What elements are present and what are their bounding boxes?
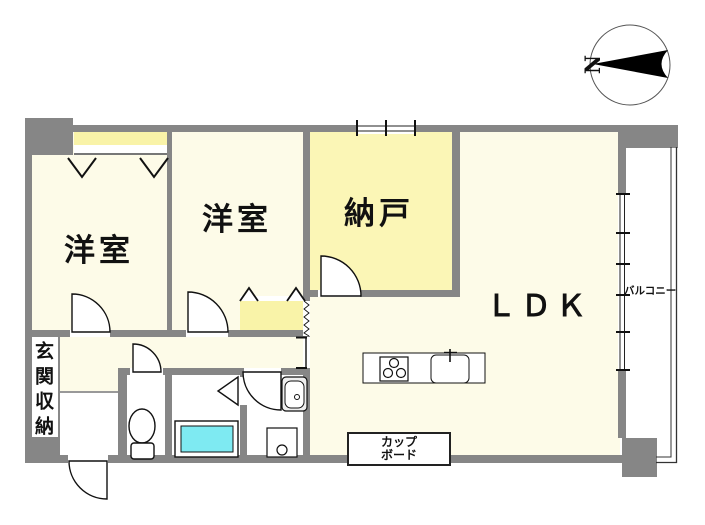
bedroom1-closet-track bbox=[74, 145, 168, 155]
pillar-bottomright bbox=[622, 438, 657, 477]
bedroom2-label: 洋室 bbox=[202, 194, 272, 239]
wall-washroom-ldk bbox=[303, 368, 310, 455]
floor-plan: 洋室 洋室 納戸 ＬＤＫ バルコニー 玄関収納 N カップ ボード bbox=[0, 0, 705, 525]
wall-top bbox=[25, 125, 678, 132]
wall-storage-right bbox=[452, 126, 460, 297]
sill-storage-door bbox=[318, 290, 360, 297]
toilet-room-area bbox=[127, 375, 165, 455]
wall-bottom bbox=[25, 455, 628, 463]
sill-bedroom1-door bbox=[70, 330, 110, 337]
washroom-area bbox=[247, 375, 303, 455]
balcony-label: バルコニー bbox=[624, 283, 676, 298]
sill-washroom-door bbox=[244, 368, 281, 375]
hallway-area bbox=[58, 337, 303, 368]
ldk-label: ＬＤＫ bbox=[486, 281, 591, 325]
cupboard-label-line2: ボード bbox=[381, 449, 417, 462]
balcony-area bbox=[628, 148, 671, 457]
sill-entrance-door bbox=[68, 455, 108, 463]
sill-toilet-door bbox=[130, 368, 163, 375]
wall-toilet-right bbox=[165, 368, 172, 455]
sill-bedroom2-door bbox=[186, 330, 228, 337]
wall-ldk-right-lower bbox=[618, 370, 626, 438]
pillar-topleft bbox=[25, 118, 73, 155]
bathroom-area bbox=[172, 375, 240, 455]
storage-room-label: 納戸 bbox=[344, 188, 414, 233]
entrance-area bbox=[58, 391, 118, 457]
wall-toilet-left bbox=[118, 368, 127, 455]
sill-bath-fold-door bbox=[240, 377, 247, 405]
cupboard-box: カップ ボード bbox=[347, 432, 451, 466]
wall-left bbox=[25, 118, 32, 463]
entrance-door bbox=[69, 461, 107, 499]
compass-north-label: N bbox=[580, 55, 605, 74]
wall-bed2-ldk bbox=[303, 126, 310, 337]
wall-bed1-bed2 bbox=[167, 126, 172, 337]
wall-corner-topright bbox=[622, 125, 678, 148]
bedroom2-closet bbox=[240, 301, 303, 331]
entrance-storage-label: 玄関収納 bbox=[33, 341, 52, 441]
wall-ldk-right-upper bbox=[618, 132, 626, 194]
hallway-area-south bbox=[58, 368, 118, 391]
bedroom1-label: 洋室 bbox=[64, 225, 134, 270]
sill-hall-ldk-slider bbox=[303, 337, 310, 368]
